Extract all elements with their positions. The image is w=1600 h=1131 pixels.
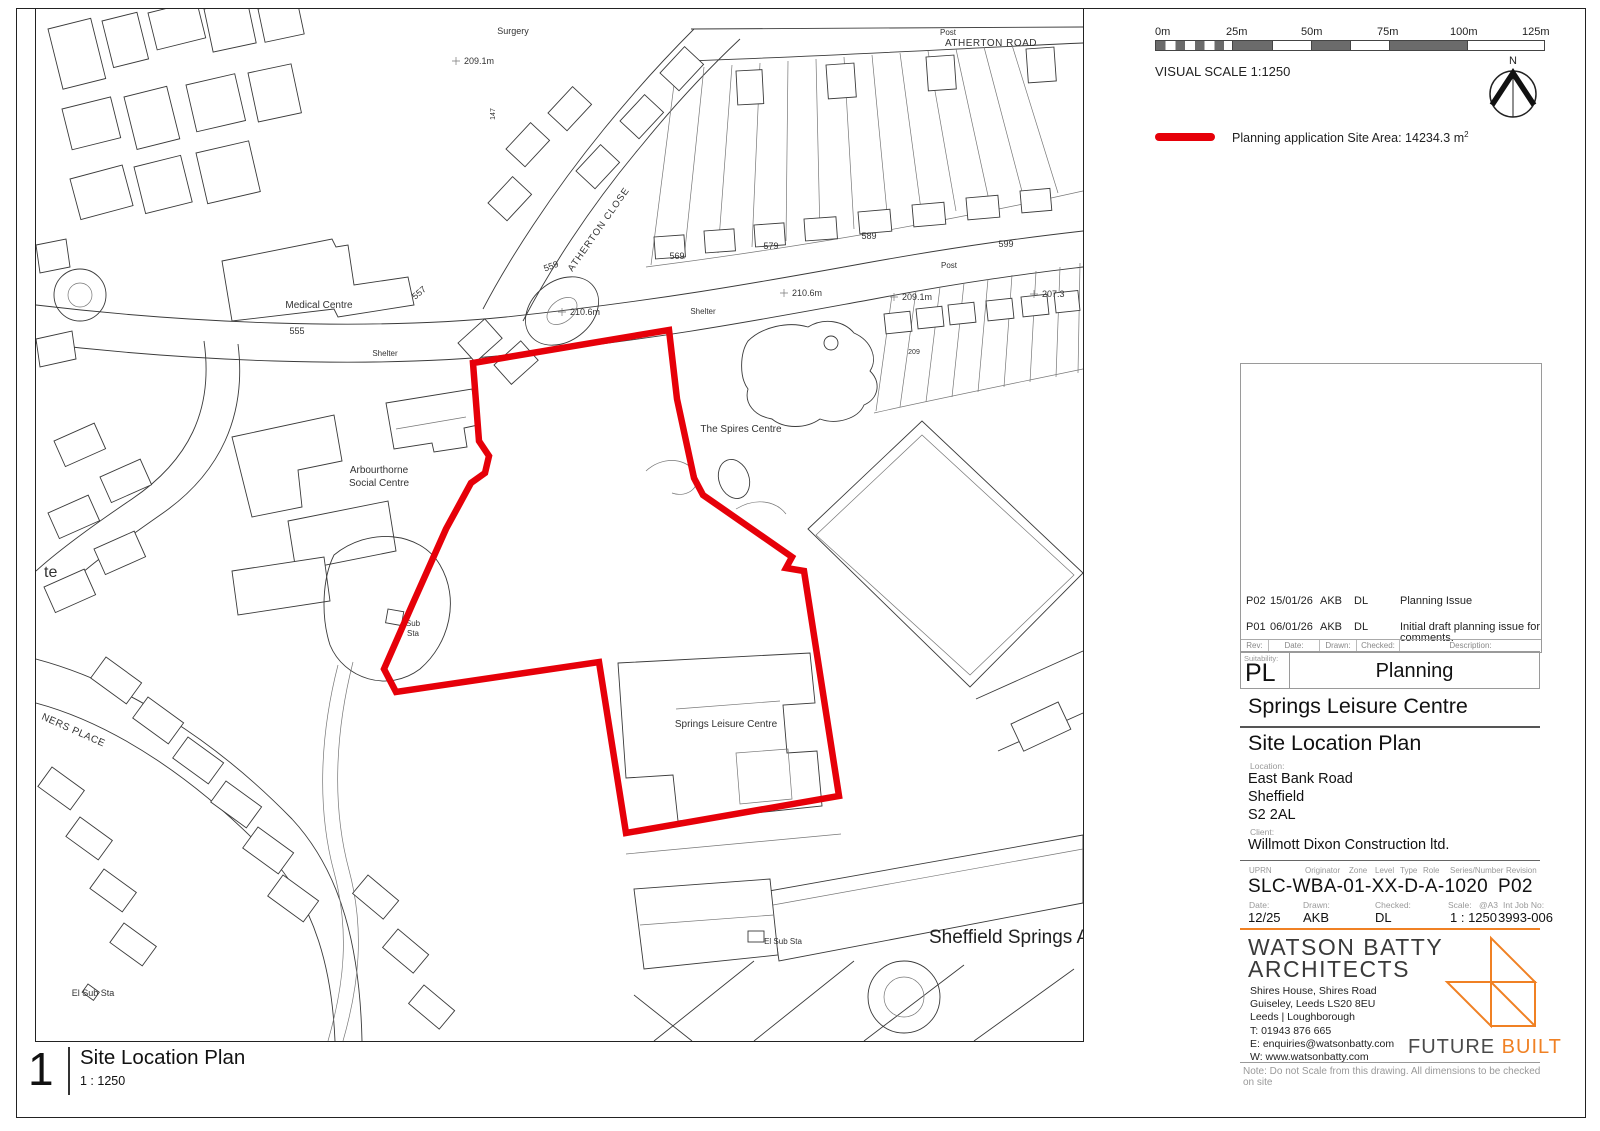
map-label-shelter-2: Shelter — [690, 307, 716, 316]
architect-phone: T: 01943 876 665 — [1250, 1025, 1394, 1038]
header-originator: Originator — [1305, 866, 1340, 875]
project-title: Springs Leisure Centre — [1248, 694, 1468, 719]
map-label-el-sub-sta-2: El Sub Sta — [72, 988, 115, 998]
north-arrow-label: N — [1509, 55, 1517, 67]
site-boundary-legend-swatch — [1155, 133, 1215, 141]
footer-drawing-scale: 1 : 1250 — [80, 1074, 125, 1088]
footer-drawing-title: Site Location Plan — [80, 1046, 245, 1070]
site-plan-map: Surgery 209.1m ATHERTON ROAD Post ATHERT… — [36, 9, 1083, 1041]
scale-bar — [1155, 40, 1545, 51]
location-line-1: East Bank Road — [1248, 770, 1353, 788]
header-job-no: Int Job No: — [1503, 900, 1544, 910]
map-buildings — [36, 9, 1083, 1041]
divider — [1240, 726, 1540, 728]
map-label-house-599: 599 — [998, 239, 1013, 249]
meta-date: 12/25 — [1248, 910, 1281, 925]
architect-address: Shires House, Shires Road Guiseley, Leed… — [1250, 985, 1394, 1064]
map-label-atherton-close: ATHERTON CLOSE — [566, 185, 632, 273]
revision-rev: P02 — [1246, 596, 1268, 607]
north-arrow: N — [1482, 52, 1544, 124]
map-label-shelter: Shelter — [372, 349, 398, 358]
future-built-word-built: BUILT — [1502, 1036, 1562, 1058]
map-label-arbourthorne-1: Arbourthorne — [350, 465, 409, 476]
revision-header-drawn: Drawn: — [1320, 640, 1357, 651]
viewport-number: 1 — [28, 1046, 54, 1092]
scale-tick-75: 75m — [1377, 26, 1398, 38]
scale-tick-0: 0m — [1155, 26, 1170, 38]
map-label-spot-height: 209.1m — [902, 292, 932, 302]
meta-checked: DL — [1375, 910, 1392, 925]
future-built-word-future: FUTURE — [1408, 1036, 1495, 1058]
map-label-house-569: 569 — [669, 251, 684, 261]
revision-header-rev: Rev: — [1241, 640, 1269, 651]
header-revision: Revision — [1506, 866, 1537, 875]
site-area-text: Planning application Site Area: 14234.3 … — [1232, 131, 1464, 145]
footer-divider — [68, 1047, 70, 1095]
map-label-house-209: 209 — [908, 349, 920, 356]
architect-email: E: enquiries@watsonbatty.com — [1250, 1038, 1394, 1051]
revision-header-description: Description: — [1400, 640, 1541, 651]
map-frame: Surgery 209.1m ATHERTON ROAD Post ATHERT… — [35, 8, 1084, 1042]
divider — [1240, 860, 1540, 861]
map-label-arbourthorne-2: Social Centre — [349, 478, 409, 489]
revision-table: P02 15/01/26 AKB DL Planning Issue P01 0… — [1240, 363, 1542, 653]
architect-address-1: Shires House, Shires Road — [1250, 985, 1394, 998]
header-scale-at: @A3 — [1479, 900, 1498, 910]
suitability-status-cell: Planning — [1289, 651, 1540, 689]
map-label-academy: Sheffield Springs Aca — [929, 927, 1083, 948]
revision-header-date: Date: — [1269, 640, 1320, 651]
header-role: Role — [1423, 866, 1439, 875]
suitability-status: Planning — [1290, 652, 1539, 690]
header-drawn: Drawn: — [1303, 900, 1330, 910]
drawing-sheet: Surgery 209.1m ATHERTON ROAD Post ATHERT… — [0, 0, 1600, 1131]
header-checked: Checked: — [1375, 900, 1411, 910]
architect-address-2: Guiseley, Leeds LS20 8EU — [1250, 998, 1394, 1011]
header-uprn: UPRN — [1249, 866, 1272, 875]
client-name: Willmott Dixon Construction ltd. — [1248, 836, 1449, 854]
scale-tick-50: 50m — [1301, 26, 1322, 38]
map-label-miners-place: NERS PLACE — [40, 712, 107, 750]
map-label-sub-sta-2: Sta — [407, 629, 420, 638]
revision-row: P02 15/01/26 AKB DL Planning Issue — [1241, 596, 1541, 607]
meta-scale: 1 : 1250 — [1450, 910, 1497, 925]
meta-job-no: 3993-006 — [1498, 910, 1553, 925]
map-label-spires-centre: The Spires Centre — [700, 424, 782, 435]
map-label-house-589: 589 — [861, 231, 876, 241]
future-built-logo-icon — [1440, 933, 1542, 1031]
header-type: Type — [1400, 866, 1417, 875]
drawing-number: SLC-WBA-01-XX-D-A-1020 — [1248, 876, 1488, 898]
revision-date: 15/01/26 — [1270, 596, 1316, 607]
map-label-atherton-road: ATHERTON ROAD — [945, 38, 1037, 49]
revision-checked: DL — [1354, 596, 1394, 607]
map-label-spot-height: 210.6m — [570, 307, 600, 317]
revision-drawn: AKB — [1320, 596, 1352, 607]
header-date: Date: — [1249, 900, 1269, 910]
revision-header-row: Rev: Date: Drawn: Checked: Description: — [1241, 639, 1541, 651]
map-label-spot-height: 209.1m — [464, 56, 494, 66]
map-label-springs-leisure-centre: Springs Leisure Centre — [675, 719, 778, 730]
map-label-spot-height: 210.6m — [792, 288, 822, 298]
map-label-el-sub-sta: El Sub Sta — [764, 937, 802, 946]
scale-tick-125: 125m — [1522, 26, 1550, 38]
site-area-legend: Planning application Site Area: 14234.3 … — [1232, 130, 1469, 145]
header-zone: Zone — [1349, 866, 1367, 875]
map-label-estate-cut: te — [44, 564, 57, 581]
scale-tick-100: 100m — [1450, 26, 1478, 38]
revision-description: Planning Issue — [1400, 596, 1541, 607]
meta-drawn: AKB — [1303, 910, 1329, 925]
architect-name-line-2: ARCHITECTS — [1248, 958, 1410, 981]
drawing-title: Site Location Plan — [1248, 731, 1421, 756]
map-label-medical-centre: Medical Centre — [285, 300, 353, 311]
map-label-post: Post — [940, 28, 957, 37]
location-line-2: Sheffield — [1248, 788, 1304, 806]
scale-bar-checker — [1156, 41, 1232, 50]
map-label-house-579: 579 — [763, 241, 778, 251]
map-label-post-2: Post — [941, 261, 958, 270]
divider — [1240, 1062, 1540, 1063]
do-not-scale-note: Note: Do not Scale from this drawing. Al… — [1243, 1066, 1543, 1088]
suitability-code: PL — [1241, 661, 1289, 685]
scale-tick-25: 25m — [1226, 26, 1247, 38]
revision-header-checked: Checked: — [1357, 640, 1400, 651]
site-area-sup: 2 — [1464, 130, 1468, 139]
suitability-cell: Suitability: PL — [1240, 651, 1290, 689]
architect-address-3: Leeds | Loughborough — [1250, 1011, 1394, 1024]
header-level: Level — [1375, 866, 1394, 875]
map-label-surgery: Surgery — [497, 26, 529, 36]
map-label-house-559: 559 — [542, 259, 560, 274]
location-line-3: S2 2AL — [1248, 806, 1296, 824]
map-label-house-555: 555 — [289, 326, 304, 336]
drawing-revision: P02 — [1498, 876, 1533, 898]
visual-scale-caption: VISUAL SCALE 1:1250 — [1155, 64, 1290, 79]
map-label-spot-height: 207.3 — [1042, 289, 1065, 299]
header-series-number: Series/Number — [1450, 866, 1503, 875]
future-built-wordmark: FUTURE BUILT — [1408, 1036, 1562, 1059]
map-label-house-147: 147 — [490, 108, 497, 120]
orange-divider — [1240, 928, 1540, 930]
header-scale: Scale: — [1448, 900, 1472, 910]
